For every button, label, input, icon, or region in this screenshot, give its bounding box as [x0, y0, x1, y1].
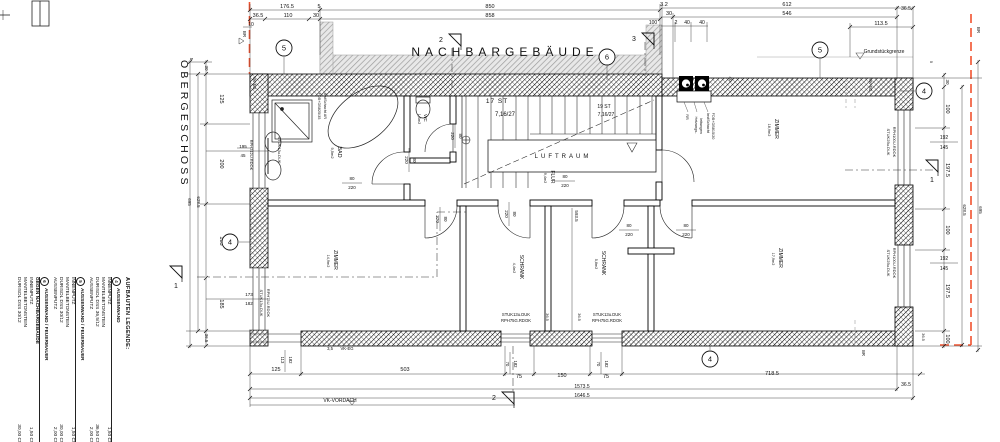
dim-label: 125 — [271, 367, 280, 373]
section-flag-label: 2 — [492, 395, 496, 402]
dim-label: 5,8m2 — [594, 259, 598, 270]
dim-label: 70 — [596, 362, 601, 367]
dim-label: BR — [861, 350, 866, 356]
dim-label: 80 — [443, 216, 448, 222]
dim-label: RPH100U.RDOK — [892, 248, 897, 279]
dim-label: 1646.5 — [574, 393, 590, 399]
dim-label: 36.5 — [253, 13, 264, 19]
dim-label: FDB+DB815/20 — [711, 113, 715, 140]
stairs — [462, 96, 656, 188]
dim-label: 3.2 — [660, 2, 668, 8]
dim-label: 80 — [626, 223, 632, 228]
property-line-label: Grundstückgrenze — [864, 49, 905, 55]
dim-label: VK-EG — [340, 346, 353, 351]
detail-circle-label: 4 — [228, 238, 232, 247]
dim-label: 546 — [782, 11, 791, 17]
dim-label: 220 — [504, 210, 509, 218]
legend-row: INNENPUTZ1,50 CM — [27, 277, 33, 442]
dim-label: 17,9m2 — [771, 253, 775, 266]
legend-item-4: 4AUSSENWANDINNENPUTZ1,50 CMMANTELBETONST… — [87, 277, 121, 442]
dim-label: 145 — [940, 266, 949, 272]
dim-label: 100 — [944, 104, 950, 113]
legend-row: INNENPUTZ1,50 CM — [105, 277, 111, 442]
room-label: ZIMMER — [777, 248, 783, 268]
dim-label: 100 — [649, 20, 658, 26]
dim-label: 40 — [699, 20, 705, 26]
legend-row: AUSSENPUTZ2,00 CM — [87, 277, 93, 442]
detail-circle-label: 4 — [922, 87, 926, 96]
dim-label: 30 — [204, 65, 209, 71]
dim-label: RPH75G.RDOK — [592, 318, 622, 323]
section-flag-label: 1 — [174, 283, 178, 290]
dim-label: 9,5m2 — [330, 147, 335, 159]
dim-label: 695 — [187, 198, 192, 206]
dim-label: 200 — [218, 159, 224, 168]
dim-label: 173 — [245, 292, 253, 297]
dim-label: 220 — [450, 132, 455, 140]
dim-label: 80 — [412, 157, 417, 163]
room-label: FLUR — [549, 170, 555, 183]
dim-label: 718.5 — [765, 371, 779, 377]
dim-label: 192 — [940, 256, 949, 262]
dim-label: InstSchacht — [706, 113, 710, 134]
room-label: LUFTRAUM — [535, 154, 592, 160]
legend-row: DURISOL DSS 30/1230,00 CM — [57, 277, 63, 442]
dim-label: 220 — [682, 232, 690, 237]
legend-row: DURISOL DSS 36,5/1236,50 CM — [93, 277, 99, 442]
dim-label: 197.5 — [944, 284, 950, 298]
dim-label: 19 ST — [597, 104, 610, 110]
dim-label: 36.5 — [577, 313, 582, 322]
dim-label: 182 — [288, 357, 293, 365]
dim-label: 850 — [485, 4, 494, 10]
dim-label: Heizungs- — [694, 116, 698, 134]
dim-label: 1573.5 — [574, 384, 590, 390]
dim-label: 4,4m2 — [512, 263, 516, 274]
dim-label: VK-EG — [252, 76, 257, 89]
neighbor-building-label: NACHBARGEBÄUDE — [411, 45, 598, 59]
dim-label: 192 — [940, 135, 949, 141]
dim-label: 220 — [348, 185, 356, 190]
outer-walls — [250, 74, 913, 346]
dim-label: leitungen — [699, 118, 703, 133]
room-label: BAD — [336, 146, 342, 157]
floorplan-drawing: OBERGESCHOSSNACHBARGEBÄUDEGrundstückgren… — [0, 0, 1000, 442]
dim-label: 30 — [313, 13, 319, 19]
dim-label: STUK13u.DUK — [259, 290, 264, 317]
dim-label: RR — [685, 114, 689, 120]
dim-label: 185 — [218, 299, 224, 308]
dim-label: 3,5 — [327, 346, 333, 351]
dim-label: 197.5 — [944, 163, 950, 177]
dim-label: 30 — [666, 11, 672, 17]
dim-label: VK-VORDACH — [323, 398, 357, 404]
dim-label: 145 — [940, 145, 949, 151]
room-label: SCHRANK — [600, 251, 606, 276]
dim-label: 220 — [561, 183, 569, 188]
dim-label: 80 — [349, 176, 355, 181]
dim-label: 45 — [240, 153, 246, 158]
dim-label: 75 — [516, 374, 522, 380]
dim-label: 593.5 — [574, 210, 579, 222]
dim-label: VK-EG — [868, 78, 873, 91]
dim-label: BR — [976, 27, 981, 34]
room-label: WC — [423, 114, 428, 122]
dim-label: 182 — [245, 301, 253, 306]
dim-label: FDB+DB825/35 — [317, 93, 321, 120]
interior-walls — [268, 96, 895, 331]
detail-circle-label: 6 — [605, 53, 609, 62]
room-label: SCHRANK — [518, 255, 524, 280]
dim-label: 113 — [280, 357, 285, 364]
dim-label: 182 — [604, 361, 609, 369]
section-flag-icon — [170, 266, 182, 278]
dim-label: 628.5 — [196, 196, 201, 208]
dim-label: 9,4m2 — [543, 173, 547, 184]
dim-label: 10 — [248, 22, 254, 28]
legend-item-6: 6AUSSENWAND / FEUERMAUERGEGEN NACHBARGEB… — [15, 277, 49, 442]
dim-label: 125 — [218, 94, 224, 103]
dim-label: 7,16/27 — [598, 112, 615, 118]
legend-title: AUFBAUTEN LEGENDE: — [123, 277, 130, 442]
legend-number-badge: 6 — [40, 277, 49, 286]
legend-row: AUSSENPUTZ2,00 CM — [51, 277, 57, 442]
dim-label: 110 — [284, 13, 293, 19]
dim-label: 70 — [505, 362, 510, 367]
legend-row: DURISOL DSS 30/1230,00 CM — [15, 277, 21, 442]
dim-label: 36.5 — [901, 382, 911, 388]
dim-label: RPH100U.RDOK — [892, 127, 897, 158]
dim-label: 18,9m2 — [767, 124, 771, 137]
dim-label: STUK25u.DUK — [886, 129, 891, 156]
dim-label: 36.5 — [901, 6, 911, 12]
dim-label: 5 — [929, 61, 934, 64]
dim-label: 182 — [513, 361, 518, 369]
dim-label: RPH75U.RDOK — [266, 289, 271, 318]
dim-label: 7,16/27 — [495, 112, 516, 118]
dim-label: 30 — [945, 79, 950, 85]
dim-label: 80 — [562, 174, 568, 179]
dim-label: 36.5 — [545, 313, 550, 322]
room-label: ZIMMER — [773, 119, 779, 139]
legend-row: MANTELBETONSTEIN — [63, 277, 69, 442]
dim-label: 36.5 — [921, 333, 926, 342]
dim-label: 40 — [728, 76, 733, 82]
legend: AUFBAUTEN LEGENDE: 4AUSSENWANDINNENPUTZ1… — [26, 277, 130, 442]
dim-label: 695 — [978, 206, 983, 214]
floor-title: OBERGESCHOSS — [178, 60, 190, 188]
legend-row: MANTELBETONSTEIN — [21, 277, 27, 442]
legend-number-badge: 5 — [76, 277, 85, 286]
dim-label: 100 — [944, 225, 950, 234]
dim-label: 80 — [683, 223, 689, 228]
legend-item-5: 5AUSSENWAND / FEUERMAUERINNENPUTZ1,50 CM… — [51, 277, 85, 442]
dim-label: 1,4m2 — [417, 114, 421, 125]
room-label: ZIMMER — [332, 250, 338, 270]
dim-label: 40 — [684, 20, 690, 26]
dim-label: 628.5 — [962, 204, 967, 216]
dim-label: 176.5 — [280, 4, 294, 10]
detail-circle-label: 4 — [708, 355, 712, 364]
dim-label: STUK13u.DUK — [502, 312, 530, 317]
dim-label: 80 — [512, 211, 517, 217]
dim-label: STUK13u.DUK — [593, 312, 621, 317]
dim-label: 36.5 — [204, 334, 209, 343]
legend-number-badge: 4 — [112, 277, 121, 286]
dim-label: InstSchacht AR — [323, 93, 327, 119]
dim-label: 220 — [625, 232, 633, 237]
dim-label: 195 — [239, 144, 247, 149]
dim-label: 14,9m2 — [326, 255, 330, 268]
dim-label: 113.5 — [874, 21, 887, 27]
dim-label: 220 — [435, 215, 440, 223]
dim-label: RPH75G.RDOK — [501, 318, 531, 323]
dim-label: RPH212U.RDOK — [249, 140, 254, 171]
floorplan-sheet: OBERGESCHOSSNACHBARGEBÄUDEGrundstückgren… — [0, 0, 1000, 442]
dim-label: 75 — [603, 374, 609, 380]
section-flag-label: 1 — [930, 177, 934, 184]
section-flag-label: 2 — [439, 37, 443, 44]
dim-label: 503 — [400, 367, 409, 373]
dim-label: 100 — [944, 334, 950, 343]
dim-label: BR — [242, 31, 247, 38]
dim-label: STUK25u.DUK — [886, 250, 891, 277]
legend-row: MANTELBETONSTEIN — [99, 277, 105, 442]
adjacent-sheet-fragment — [0, 1, 49, 26]
dim-label: 2 — [675, 20, 678, 26]
detail-circle-label: 5 — [818, 46, 822, 55]
dim-label: STUK13u.DUK — [277, 137, 282, 164]
dim-label: 612 — [782, 2, 791, 8]
dim-label: 220 — [404, 156, 409, 164]
dim-label: 150 — [557, 373, 566, 379]
detail-circle-label: 5 — [282, 44, 286, 53]
dim-label: 17 ST — [486, 98, 508, 105]
section-flag-label: 3 — [632, 36, 636, 43]
legend-row: INNENPUTZ1,50 CM — [69, 277, 75, 442]
reference-dashed-lines — [846, 78, 855, 344]
dim-label: 80 — [458, 133, 463, 139]
dim-label: 858 — [485, 13, 494, 19]
dim-label: 5 — [317, 4, 320, 10]
